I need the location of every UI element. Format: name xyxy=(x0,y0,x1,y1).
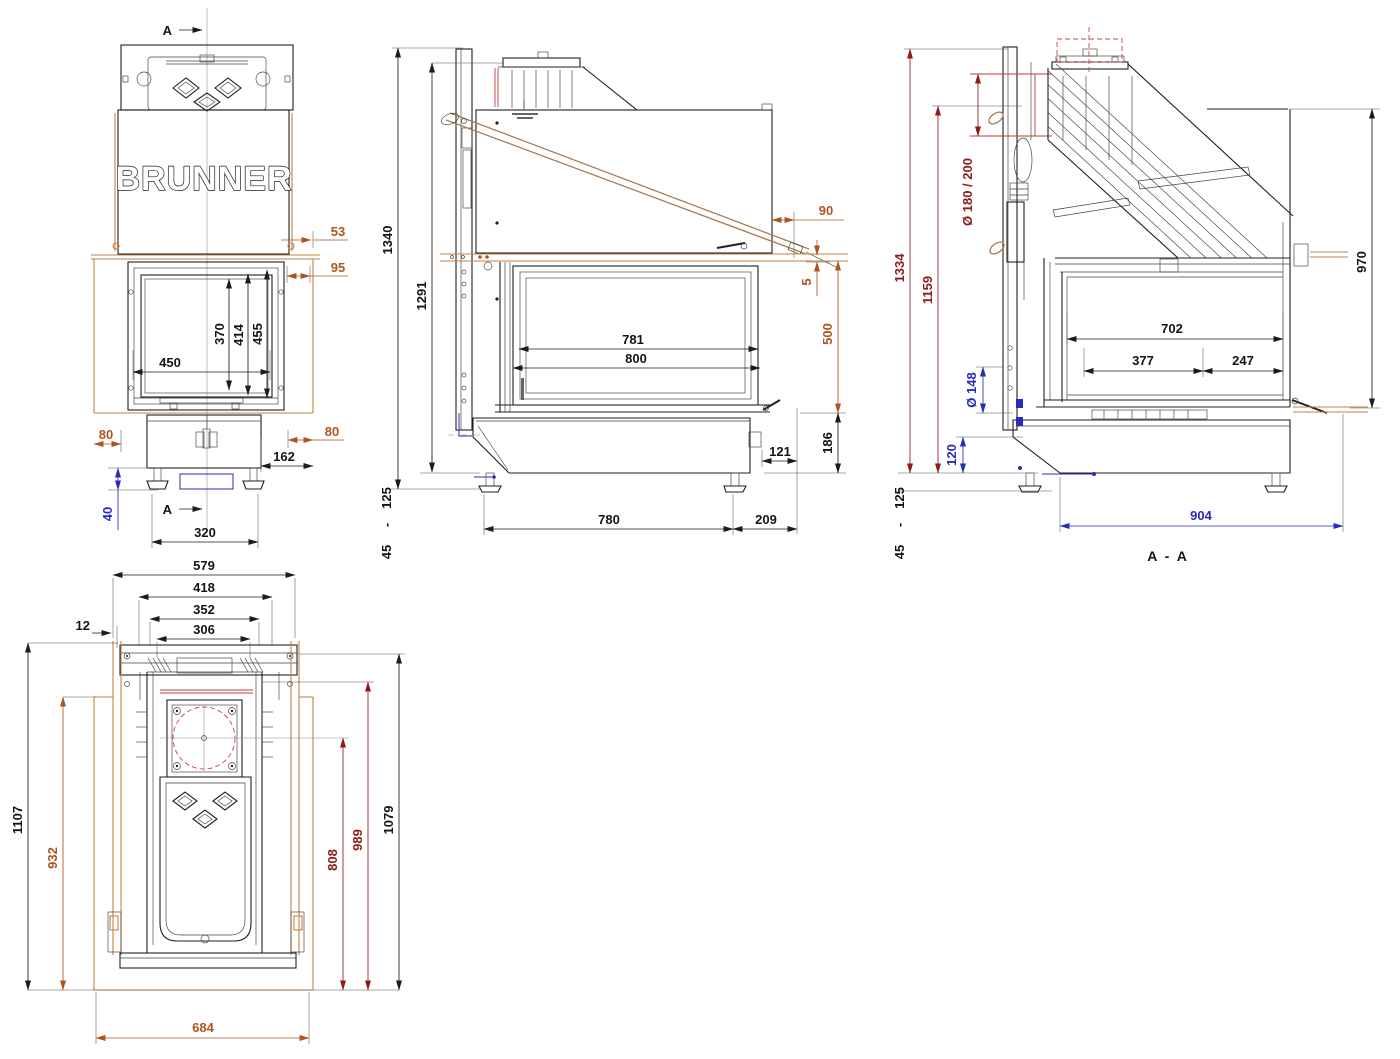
dim-label: 125 xyxy=(379,487,394,509)
dim-front-162: 162 xyxy=(261,438,313,472)
dim-label: 932 xyxy=(45,847,60,869)
dim-section-1334: 1334 xyxy=(892,49,1038,473)
dim-label: 40 xyxy=(100,507,115,521)
section-view-dimensions: 1334 1159 Ø 180 / 200 970 702 xyxy=(892,49,1380,564)
dim-top-684: 684 xyxy=(96,992,309,1044)
dim-section-120: 120 xyxy=(944,437,1023,473)
dim-label: 12 xyxy=(76,618,90,633)
dim-label: 377 xyxy=(1132,353,1154,368)
side-firebox xyxy=(495,243,770,412)
dim-front-80-right: 80 xyxy=(288,424,344,448)
dim-label: 450 xyxy=(159,355,181,370)
section-title: A - A xyxy=(1147,548,1189,564)
dim-section-377: 377 xyxy=(1084,348,1203,377)
dim-section-flue-diameter: Ø 180 / 200 xyxy=(960,74,978,226)
dim-front-95: 95 xyxy=(287,260,348,283)
dim-label: 579 xyxy=(193,558,215,573)
dim-front-414: 414 xyxy=(231,274,248,395)
dim-label: 1340 xyxy=(380,226,395,255)
dim-label: Ø 180 / 200 xyxy=(960,158,975,226)
dim-label: - xyxy=(892,523,907,527)
dim-label: 455 xyxy=(250,323,265,345)
dim-top-12: 12 xyxy=(76,618,117,648)
dim-label: 45 xyxy=(379,545,394,559)
lift-mechanism xyxy=(1007,62,1032,300)
dim-label: 414 xyxy=(231,323,246,345)
air-box-blue xyxy=(180,474,233,489)
section-view-drawing xyxy=(970,27,1368,492)
front-view: BRUNNER xyxy=(91,8,348,548)
flue-plate xyxy=(160,700,349,777)
dim-side-186: 186 xyxy=(764,413,846,473)
dim-label: - xyxy=(379,523,394,527)
dim-label: 808 xyxy=(325,849,340,871)
dim-label: 904 xyxy=(1190,508,1212,523)
front-view-dimensions: A A 53 95 450 xyxy=(94,23,348,548)
dim-label: 186 xyxy=(820,432,835,454)
dim-label: 370 xyxy=(212,323,227,345)
dim-label: 1291 xyxy=(414,282,429,311)
dim-label: 5 xyxy=(799,278,814,285)
dim-label: 1334 xyxy=(892,253,907,283)
brand-logo: BRUNNER xyxy=(116,160,293,198)
dim-top-1107: 1107 xyxy=(10,643,399,990)
dim-section-970: 970 xyxy=(1290,109,1380,408)
section-marker-bottom: A xyxy=(163,502,202,517)
drawing-canvas: BRUNNER xyxy=(0,0,1400,1059)
top-diamond-icons xyxy=(173,792,237,828)
top-view-drawing xyxy=(94,641,349,990)
dim-label: 352 xyxy=(193,602,215,617)
dim-label: 320 xyxy=(194,525,216,540)
dim-top-989: 989 xyxy=(262,682,374,990)
side-view: 1340 1291 90 5 500 xyxy=(379,48,848,559)
dim-label: 1107 xyxy=(10,806,25,834)
dim-label: 1079 xyxy=(381,806,396,835)
dim-label: 53 xyxy=(331,224,345,239)
dim-label: 162 xyxy=(273,449,295,464)
dim-top-932: 932 xyxy=(45,697,96,990)
dim-front-53: 53 xyxy=(281,224,348,248)
dim-label: 1159 xyxy=(920,276,935,304)
dim-top-306: 306 xyxy=(157,622,250,658)
section-marker-top: A xyxy=(163,23,202,38)
dim-side-foot-range: 125 - 45 xyxy=(379,487,394,559)
section-base xyxy=(1013,399,1290,492)
dim-label: 306 xyxy=(193,622,215,637)
dim-side-780: 780 xyxy=(484,494,733,535)
dim-top-1079: 1079 xyxy=(299,654,405,990)
dim-label: 90 xyxy=(819,203,833,218)
dim-label: 45 xyxy=(892,545,907,559)
dim-side-800: 800 xyxy=(513,351,760,368)
dim-front-80-left: 80 xyxy=(94,427,121,452)
dim-label: 418 xyxy=(193,580,215,595)
dim-label: 80 xyxy=(325,424,339,439)
top-body xyxy=(140,672,279,953)
side-base xyxy=(448,400,780,492)
dim-label: 209 xyxy=(755,512,777,527)
dim-side-5: 5 xyxy=(799,240,830,296)
dim-label: 247 xyxy=(1232,353,1254,368)
support-rod xyxy=(440,111,838,268)
dim-top-808: 808 xyxy=(325,738,343,990)
dim-label: 970 xyxy=(1354,251,1369,273)
dim-label: 684 xyxy=(192,1020,214,1035)
top-view: 579 418 352 306 12 xyxy=(10,558,405,1044)
dim-label: 780 xyxy=(598,512,620,527)
technical-drawing: BRUNNER xyxy=(0,0,1400,1059)
dim-label: 800 xyxy=(625,351,647,366)
hood xyxy=(1030,40,1330,442)
dim-label: 702 xyxy=(1161,321,1183,336)
dim-label: 500 xyxy=(820,323,835,345)
section-view: 1334 1159 Ø 180 / 200 970 702 xyxy=(892,27,1380,564)
dim-section-247: 247 xyxy=(1203,353,1283,371)
dim-side-1340: 1340 xyxy=(380,48,480,489)
section-firebox xyxy=(1036,244,1368,419)
dim-label: 95 xyxy=(331,260,345,275)
dim-front-450: 450 xyxy=(133,350,270,380)
side-view-drawing xyxy=(440,49,848,492)
dim-section-foot-range: 125 - 45 xyxy=(892,487,1052,559)
section-rear-post xyxy=(1003,47,1017,430)
dim-label: 80 xyxy=(99,427,113,442)
dim-label: 781 xyxy=(622,332,644,347)
dim-front-370: 370 xyxy=(212,279,229,390)
dim-side-781: 781 xyxy=(519,332,758,349)
section-a-label-bottom: A xyxy=(163,502,173,517)
section-a-label-top: A xyxy=(163,23,173,38)
dim-front-455: 455 xyxy=(250,270,267,398)
dim-label: 989 xyxy=(350,829,365,851)
side-fins xyxy=(136,712,273,757)
front-base xyxy=(147,415,264,489)
dim-label: 120 xyxy=(944,444,959,466)
dim-label: 125 xyxy=(892,487,907,509)
dim-label: Ø 148 xyxy=(964,372,979,407)
dim-label: 121 xyxy=(769,444,791,459)
heat-exchanger-box xyxy=(476,110,772,253)
top-view-dimensions: 579 418 352 306 12 xyxy=(10,558,405,1044)
micro-brand-label xyxy=(521,378,524,400)
flue-collar xyxy=(970,27,1128,136)
dim-section-148: Ø 148 xyxy=(964,367,1013,413)
dim-side-90: 90 xyxy=(772,203,844,258)
dim-front-40: 40 xyxy=(100,468,158,530)
dim-side-209: 209 xyxy=(733,512,797,529)
